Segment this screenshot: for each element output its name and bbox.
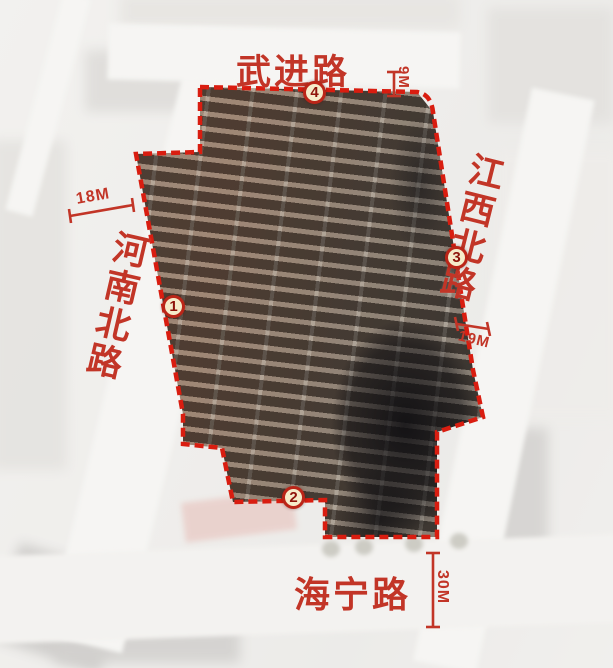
marker-2: 2 [282,486,305,509]
marker-1-number: 1 [169,298,177,315]
marker-4-number: 4 [310,84,318,101]
road-label-wujin: 武进路 [236,44,350,95]
marker-3: 3 [445,246,468,269]
site-boundary [136,87,483,537]
site-plan-map: 武进路 江西北路 河南北路 海宁路 18M 9M 19M 30M 1 2 3 4 [0,0,613,668]
marker-2-number: 2 [289,489,297,506]
dimension-label-30m: 30M [433,570,451,604]
marker-4: 4 [303,81,326,104]
marker-3-number: 3 [452,249,460,266]
marker-1: 1 [162,295,185,318]
dimension-label-9m: 9M [395,66,412,89]
road-label-haining: 海宁路 [294,566,411,618]
